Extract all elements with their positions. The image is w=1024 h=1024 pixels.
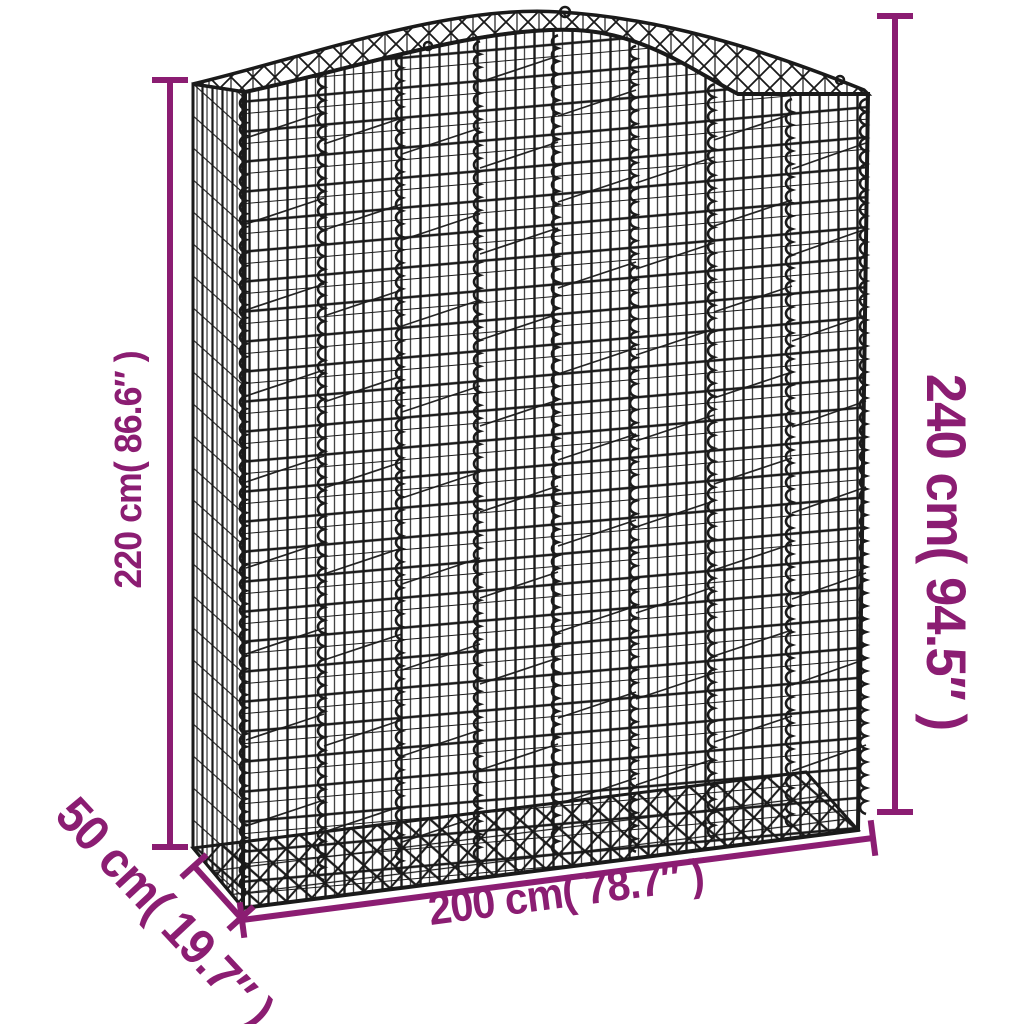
basket-left-side [193,84,245,908]
basket-mesh [193,7,868,908]
product-dimension-diagram: 220 cm( 86.6″ ) 240 cm( 94.5″ ) 200 cm( … [0,0,1024,1024]
dimension-line-height-left [152,80,188,847]
dimension-label-height-left: 220 cm( 86.6″ ) [110,351,148,588]
dimension-line-height-right [877,16,913,812]
dimension-label-height-right: 240 cm( 94.5″ ) [918,374,974,730]
